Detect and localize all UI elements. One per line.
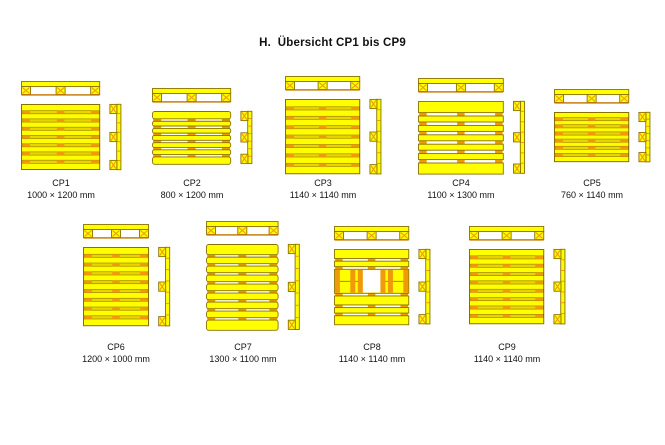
pallet-labels-cp3: CP31140 × 1140 mm — [253, 177, 393, 201]
pallet-group-cp7 — [206, 221, 301, 331]
pallet-top-view — [207, 245, 279, 331]
pallet-side-view — [513, 101, 524, 173]
pallet-id-label: CP1 — [0, 177, 131, 189]
pallet-side-view — [419, 250, 430, 325]
pallet-group-cp8 — [334, 226, 432, 325]
pallet-dims-label: 760 × 1140 mm — [522, 189, 662, 201]
pallet-labels-cp9: CP91140 × 1140 mm — [437, 341, 577, 365]
pallet-side-view — [158, 248, 169, 327]
pallet-end-view — [554, 89, 628, 103]
pallet-group-cp4 — [418, 78, 526, 175]
pallet-labels-cp7: CP71300 × 1100 mm — [173, 341, 313, 365]
pallet-group-cp5 — [554, 89, 652, 163]
pallet-id-label: CP8 — [302, 341, 442, 353]
pallet-side-view — [110, 104, 121, 169]
pallet-group-cp6 — [83, 224, 172, 327]
pallet-side-view — [241, 111, 252, 163]
pallet-end-view — [285, 77, 359, 91]
pallet-labels-cp6: CP61200 × 1000 mm — [46, 341, 186, 365]
pallet-dims-label: 1000 × 1200 mm — [0, 189, 131, 201]
pallet-group-cp1 — [21, 81, 123, 171]
pallet-technical-drawing — [152, 88, 254, 165]
pallet-side-view — [554, 250, 565, 325]
pallet-dims-label: 1100 × 1300 mm — [391, 189, 531, 201]
pallet-top-view — [469, 250, 543, 324]
pallet-top-view — [418, 101, 503, 174]
pallet-dims-label: 1140 × 1140 mm — [437, 353, 577, 365]
pallet-id-label: CP4 — [391, 177, 531, 189]
pallet-top-view — [152, 111, 230, 164]
pallet-end-view — [152, 88, 230, 102]
pallet-group-cp2 — [152, 88, 254, 165]
pallet-id-label: CP3 — [253, 177, 393, 189]
pallet-overview-page: H. Übersicht CP1 bis CP9 CP11000 × 1200 … — [0, 0, 665, 445]
pallet-labels-cp1: CP11000 × 1200 mm — [0, 177, 131, 201]
pallet-id-label: CP2 — [122, 177, 262, 189]
pallet-labels-cp5: CP5760 × 1140 mm — [522, 177, 662, 201]
pallet-technical-drawing — [206, 221, 301, 331]
pallet-top-view — [83, 248, 148, 326]
pallet-end-view — [83, 225, 148, 239]
pallet-side-view — [288, 244, 299, 329]
pallet-end-view — [334, 227, 408, 241]
pallet-technical-drawing — [554, 89, 652, 163]
pallet-group-cp3 — [285, 76, 383, 175]
pallet-end-view — [207, 222, 279, 236]
pallet-dims-label: 1200 × 1000 mm — [46, 353, 186, 365]
pallet-top-view — [554, 112, 628, 161]
pallet-dims-label: 1140 × 1140 mm — [302, 353, 442, 365]
pallet-technical-drawing — [83, 224, 172, 327]
pallet-end-view — [418, 78, 503, 92]
pallet-id-label: CP9 — [437, 341, 577, 353]
pallet-dims-label: 1140 × 1140 mm — [253, 189, 393, 201]
pallet-top-view — [285, 100, 359, 174]
pallet-dims-label: 1300 × 1100 mm — [173, 353, 313, 365]
pallet-labels-cp4: CP41100 × 1300 mm — [391, 177, 531, 201]
pallet-labels-cp8: CP81140 × 1140 mm — [302, 341, 442, 365]
pallet-id-label: CP7 — [173, 341, 313, 353]
pallet-top-view — [334, 250, 408, 325]
page-title: H. Übersicht CP1 bis CP9 — [0, 37, 665, 49]
pallet-top-view — [21, 105, 99, 170]
pallet-technical-drawing — [469, 226, 567, 325]
pallet-technical-drawing — [285, 76, 383, 175]
pallet-end-view — [21, 82, 99, 96]
pallet-side-view — [370, 100, 381, 175]
pallet-dims-label: 800 × 1200 mm — [122, 189, 262, 201]
pallet-technical-drawing — [334, 226, 432, 325]
pallet-id-label: CP6 — [46, 341, 186, 353]
pallet-labels-cp2: CP2800 × 1200 mm — [122, 177, 262, 201]
pallet-group-cp9 — [469, 226, 567, 325]
pallet-side-view — [639, 112, 650, 162]
pallet-end-view — [469, 227, 543, 241]
pallet-technical-drawing — [418, 78, 526, 175]
pallet-id-label: CP5 — [522, 177, 662, 189]
pallet-technical-drawing — [21, 81, 123, 171]
